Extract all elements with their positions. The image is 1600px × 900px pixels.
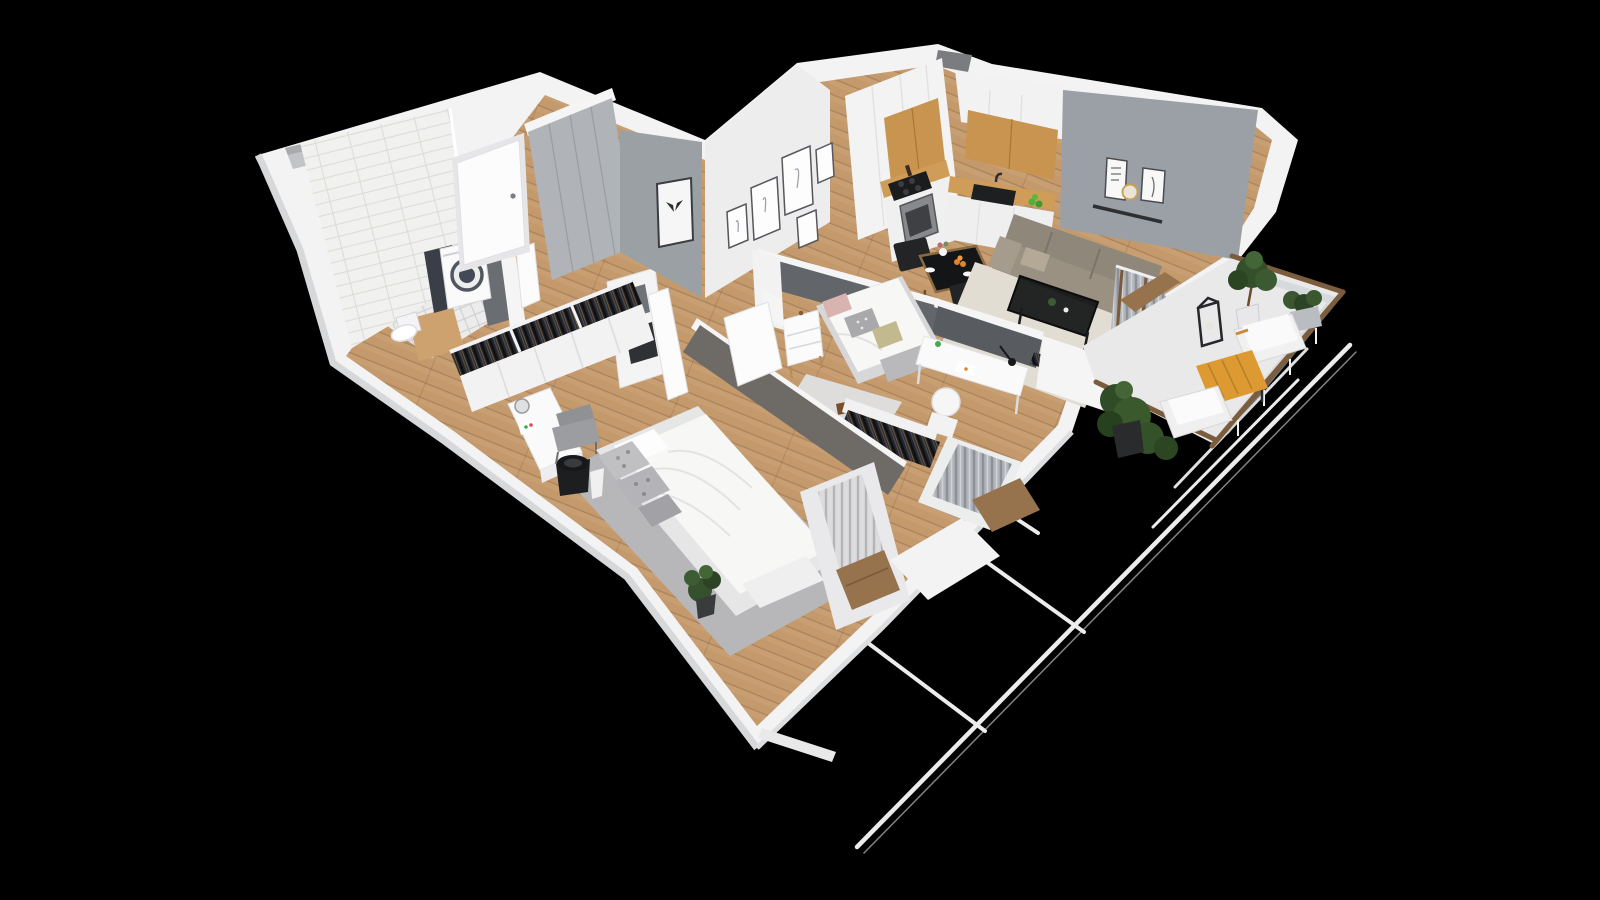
parrot-figure xyxy=(935,341,941,347)
gold-round-decor xyxy=(1123,185,1138,200)
chair-back xyxy=(932,388,960,416)
figurine xyxy=(799,311,804,316)
table-plant xyxy=(1048,298,1056,306)
table-mug xyxy=(1064,308,1069,313)
shelf-frame-feather-art xyxy=(1141,168,1165,203)
white-bin xyxy=(590,468,604,499)
floorplan-render xyxy=(0,0,1600,900)
candle xyxy=(1207,323,1214,330)
butterfly-frame xyxy=(657,178,693,247)
round-mirror xyxy=(515,399,529,413)
front-door xyxy=(457,140,525,265)
door-handle xyxy=(510,193,515,198)
vase xyxy=(939,248,947,256)
